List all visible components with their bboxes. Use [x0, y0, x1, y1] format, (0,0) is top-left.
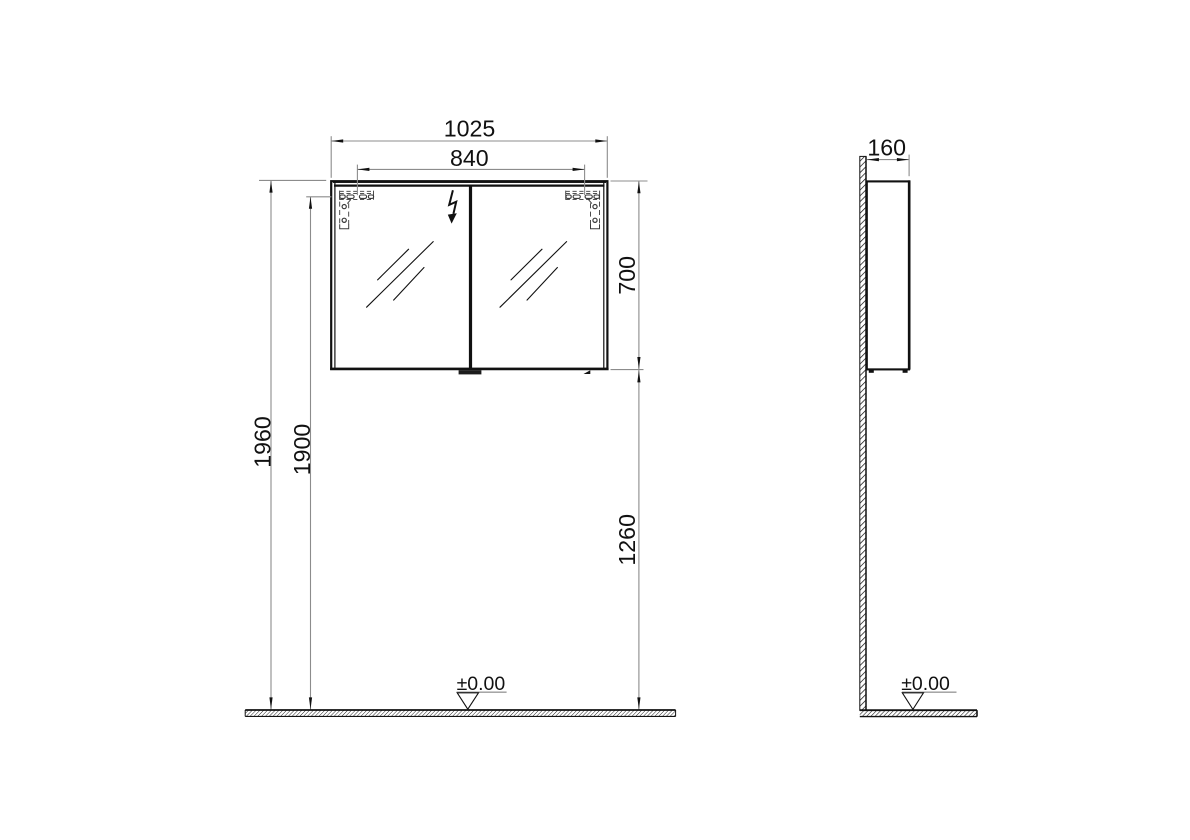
- svg-text:700: 700: [614, 256, 640, 295]
- svg-text:1960: 1960: [249, 416, 275, 468]
- svg-text:840: 840: [450, 145, 489, 171]
- svg-text:1260: 1260: [614, 514, 640, 566]
- svg-text:1900: 1900: [289, 424, 315, 476]
- svg-text:1025: 1025: [444, 116, 496, 142]
- svg-text:160: 160: [867, 134, 906, 160]
